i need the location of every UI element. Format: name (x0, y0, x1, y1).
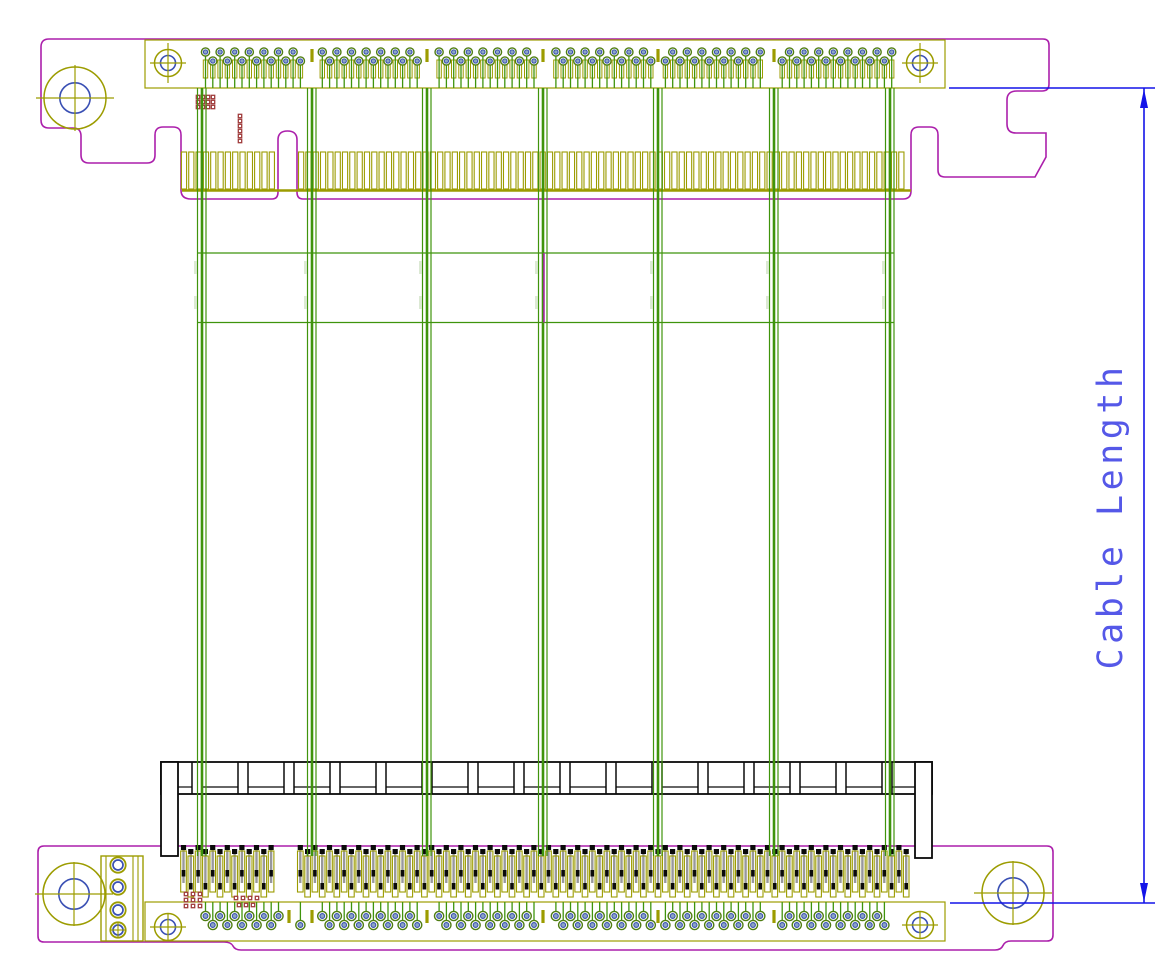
via (238, 119, 241, 122)
via (255, 896, 258, 899)
finger (320, 152, 325, 189)
finger (591, 152, 596, 189)
via (238, 134, 241, 137)
via (211, 100, 214, 103)
via (206, 95, 209, 98)
via (184, 892, 187, 895)
dimension-arrow-down (1140, 883, 1148, 902)
pad-gap-tick (656, 49, 659, 62)
finger (335, 152, 340, 189)
finger (899, 152, 904, 189)
pad-gap-tick (310, 910, 313, 923)
finger (496, 152, 501, 189)
socket-end-wall (161, 762, 178, 856)
finger (665, 152, 670, 189)
finger (577, 152, 582, 189)
socket-end-wall (915, 762, 932, 858)
finger (225, 152, 230, 189)
finger (818, 152, 823, 189)
finger (716, 152, 721, 189)
finger (694, 152, 699, 189)
cable-length-text: Cable Length (1091, 363, 1131, 670)
finger (218, 152, 223, 189)
finger (723, 152, 728, 189)
finger (804, 152, 809, 189)
finger (811, 152, 816, 189)
finger (503, 152, 508, 189)
via (184, 904, 187, 907)
finger (555, 152, 560, 189)
via (198, 904, 201, 907)
pad-gap-tick (287, 910, 290, 923)
finger (211, 152, 216, 189)
finger (445, 152, 450, 189)
via (191, 892, 194, 895)
finger (877, 152, 882, 189)
finger (635, 152, 640, 189)
finger (613, 152, 618, 189)
bottom-pad-row (201, 902, 889, 930)
finger (599, 152, 604, 189)
finger (394, 152, 399, 189)
finger (855, 152, 860, 189)
pad-gap-tick (772, 910, 775, 923)
socket-pin-row (181, 845, 909, 897)
via (211, 95, 214, 98)
finger (269, 152, 274, 189)
pad-gap-tick (425, 910, 428, 923)
finger (299, 152, 304, 189)
finger (643, 152, 648, 189)
finger (511, 152, 516, 189)
finger (196, 152, 201, 189)
mounting-hole (974, 861, 1052, 925)
via (237, 903, 240, 906)
finger (760, 152, 765, 189)
via (206, 105, 209, 108)
finger (525, 152, 530, 189)
finger (489, 152, 494, 189)
cable-bundle (535, 88, 547, 856)
finger (350, 152, 355, 189)
finger (247, 152, 252, 189)
mounting-hole (150, 913, 186, 941)
finger (181, 152, 186, 189)
via (198, 898, 201, 901)
finger (328, 152, 333, 189)
finger (686, 152, 691, 189)
via (238, 124, 241, 127)
via (198, 892, 201, 895)
pad-gap-tick (541, 49, 544, 62)
via (248, 896, 251, 899)
finger (467, 152, 472, 189)
finger (452, 152, 457, 189)
finger (189, 152, 194, 189)
finger (482, 152, 487, 189)
finger (233, 152, 238, 189)
finger (342, 152, 347, 189)
finger (628, 152, 633, 189)
cable-length-label: Cable Length (1091, 363, 1131, 670)
via (238, 139, 241, 142)
finger (738, 152, 743, 189)
via (191, 904, 194, 907)
mounting-hole (902, 43, 938, 83)
mounting-hole (902, 911, 938, 939)
finger (862, 152, 867, 189)
finger (584, 152, 589, 189)
finger (372, 152, 377, 189)
via (238, 114, 241, 117)
finger (833, 152, 838, 189)
finger (474, 152, 479, 189)
finger (679, 152, 684, 189)
pad-gap-tick (425, 49, 428, 62)
finger (708, 152, 713, 189)
finger (262, 152, 267, 189)
finger (306, 152, 311, 189)
power-connector (101, 856, 143, 941)
finger (752, 152, 757, 189)
finger (840, 152, 845, 189)
finger (518, 152, 523, 189)
finger (569, 152, 574, 189)
finger (562, 152, 567, 189)
cable-bundle (650, 88, 662, 856)
pad-gap-tick (656, 910, 659, 923)
finger (386, 152, 391, 189)
finger (789, 152, 794, 189)
finger (745, 152, 750, 189)
finger (547, 152, 552, 189)
finger (606, 152, 611, 189)
pad-gap-tick (541, 910, 544, 923)
finger (460, 152, 465, 189)
via (184, 898, 187, 901)
via (251, 903, 254, 906)
pcie-riser-cad-drawing: Cable Length (0, 0, 1173, 961)
mounting-hole (36, 65, 114, 131)
finger (533, 152, 538, 189)
finger (364, 152, 369, 189)
finger (401, 152, 406, 189)
pad-gap-tick (772, 49, 775, 62)
via (234, 896, 237, 899)
finger (408, 152, 413, 189)
cable-bundle (419, 88, 431, 856)
pad-gap-tick (310, 49, 313, 62)
cable-bundle (766, 88, 778, 856)
finger (650, 152, 655, 189)
via (211, 105, 214, 108)
finger (240, 152, 245, 189)
finger (782, 152, 787, 189)
finger (621, 152, 626, 189)
cable-bundle (194, 88, 206, 856)
finger (796, 152, 801, 189)
via (244, 903, 247, 906)
finger (730, 152, 735, 189)
cable-bundles (194, 88, 894, 856)
finger (701, 152, 706, 189)
via (191, 898, 194, 901)
finger (826, 152, 831, 189)
via (238, 129, 241, 132)
finger (848, 152, 853, 189)
finger (357, 152, 362, 189)
via (206, 100, 209, 103)
finger (672, 152, 677, 189)
finger (379, 152, 384, 189)
edge-fingers (181, 152, 911, 191)
top-pad-row (201, 48, 895, 88)
finger (438, 152, 443, 189)
cable-bundle (882, 88, 894, 856)
finger (869, 152, 874, 189)
mounting-hole (150, 43, 186, 83)
drawing-canvas: Cable Length (0, 0, 1173, 961)
via (241, 896, 244, 899)
finger (255, 152, 260, 189)
finger (416, 152, 421, 189)
dimension-arrow-up (1140, 89, 1148, 108)
cable-bundle (304, 88, 316, 856)
